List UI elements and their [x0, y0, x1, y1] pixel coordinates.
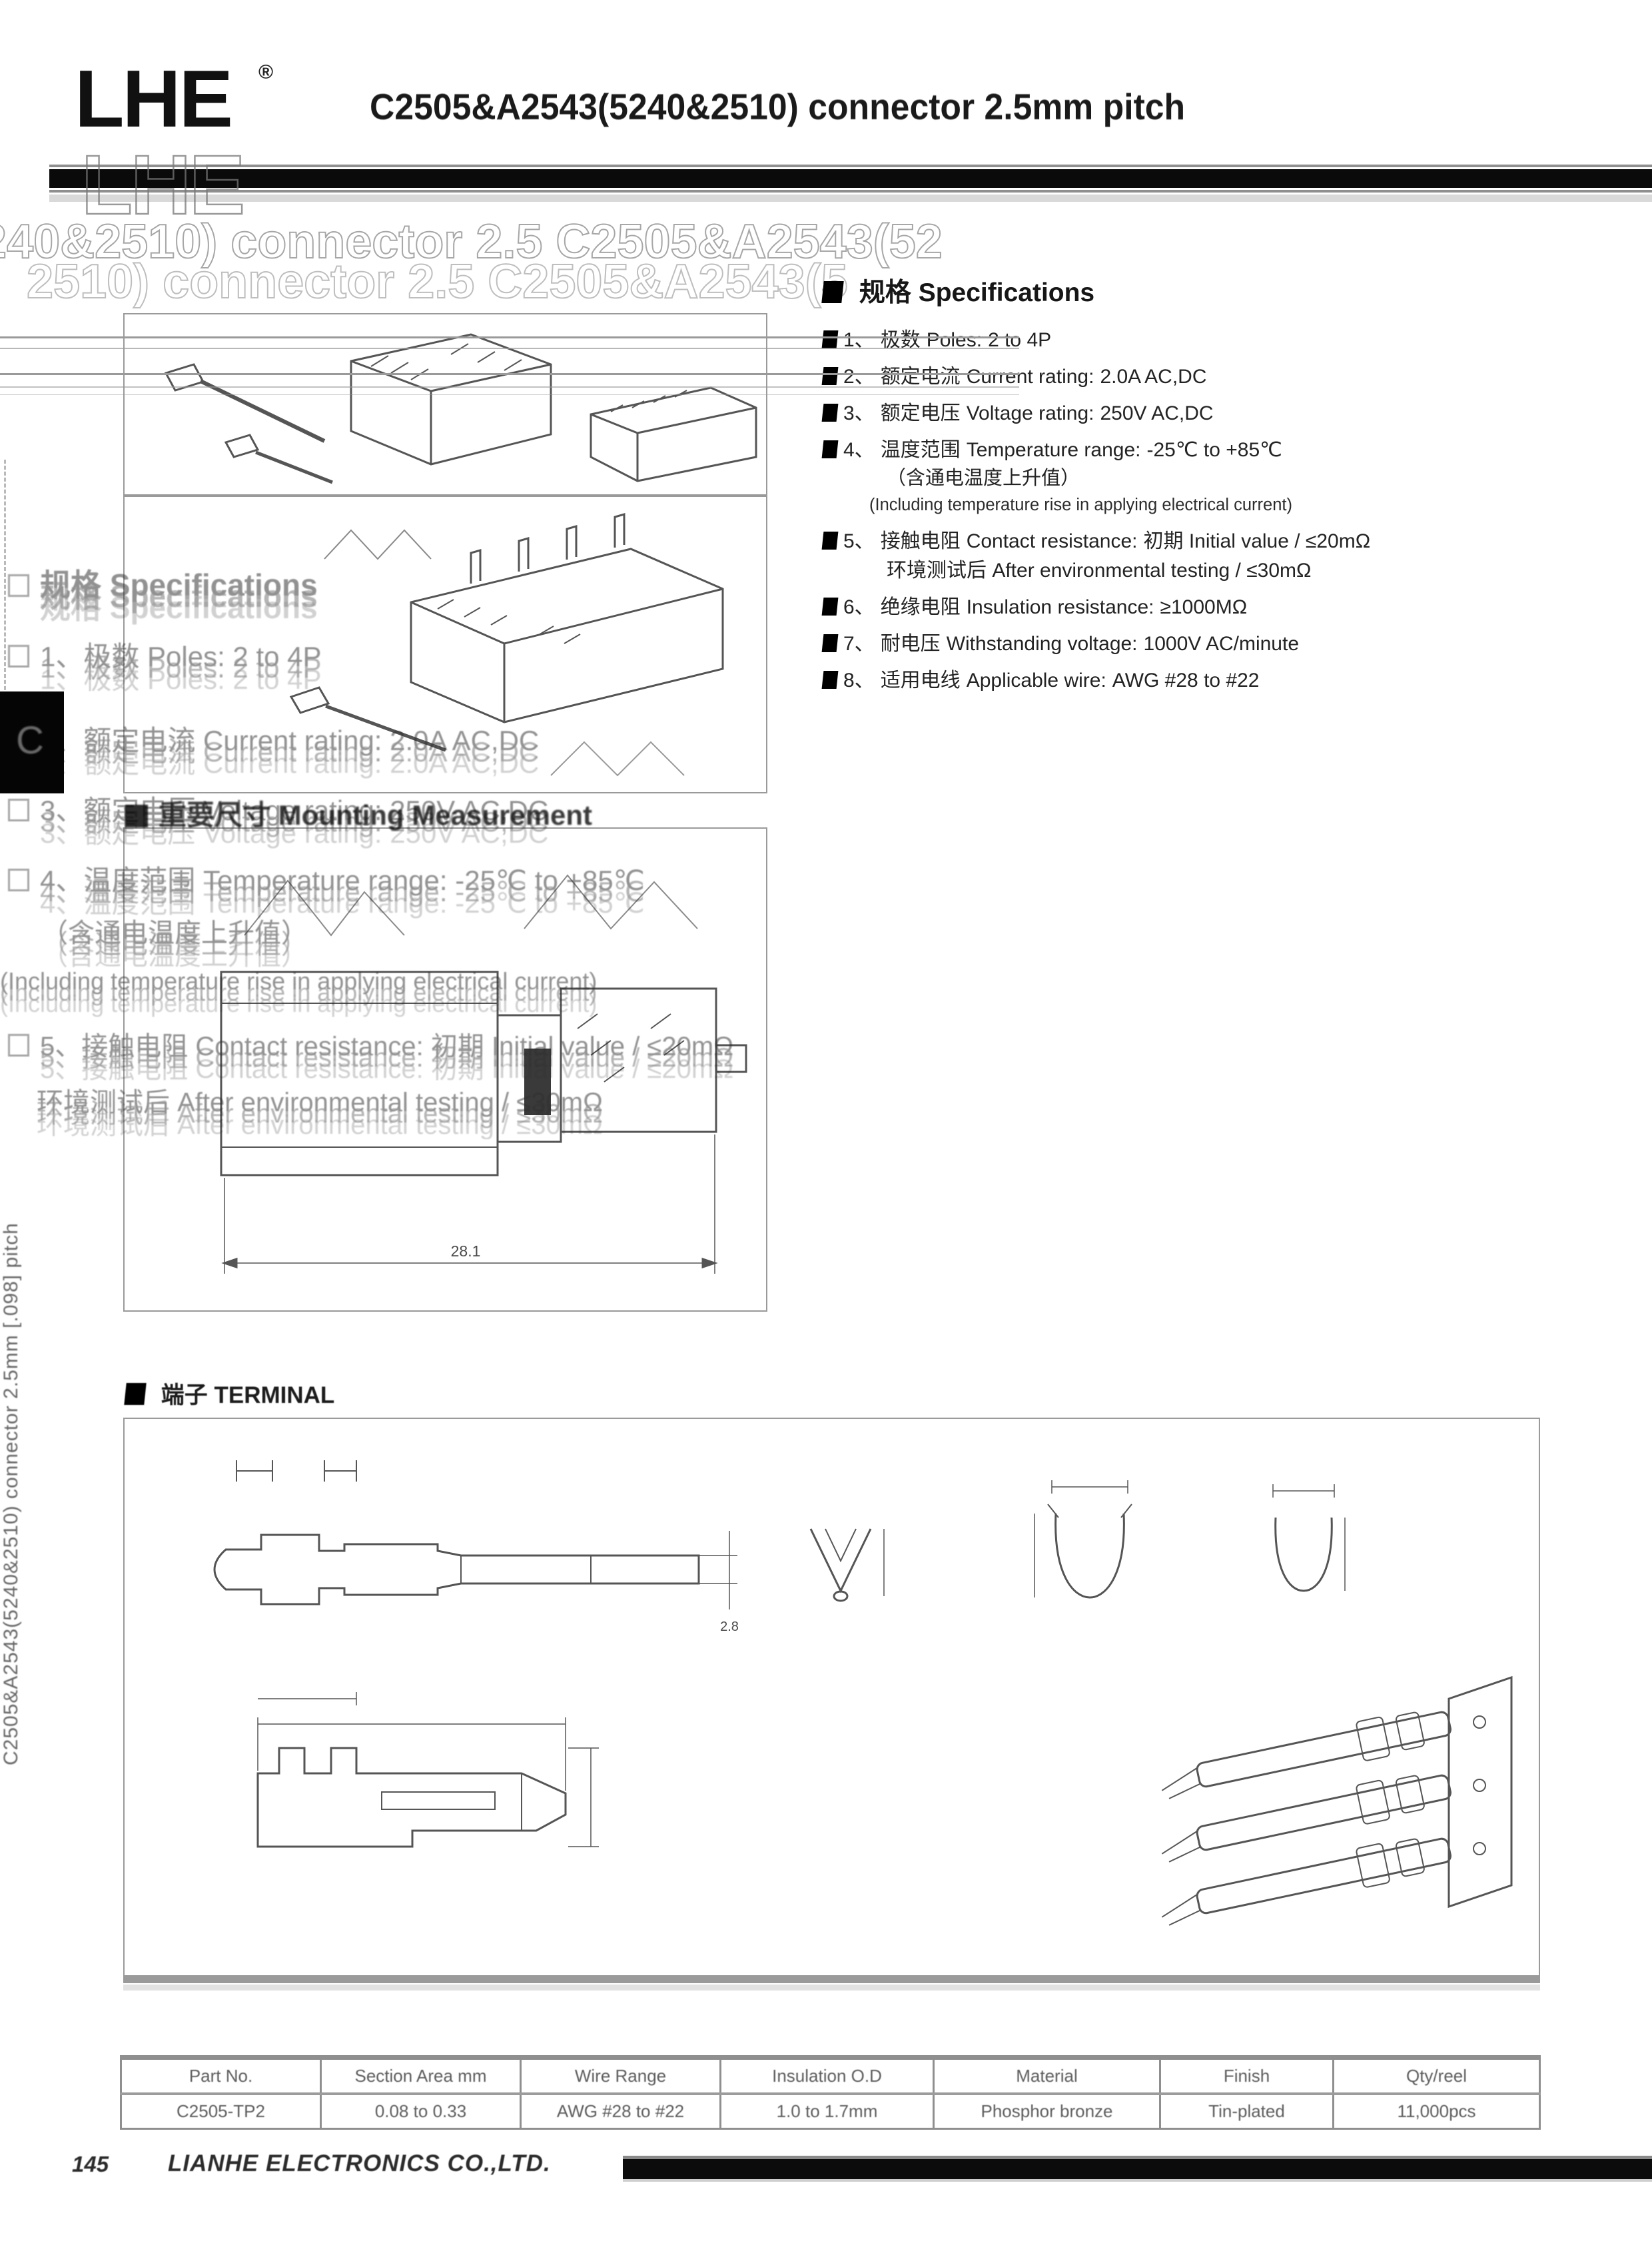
- u-barrel-drawing-2: [1273, 1484, 1345, 1591]
- table-header-cell: Part No.: [121, 2058, 321, 2094]
- ghost-spec-line: 规格 Specifications: [8, 561, 318, 605]
- spec-item-label-zh: 额定电压: [881, 402, 961, 424]
- scan-artifact-line: [0, 386, 1019, 388]
- scan-artifact-line: [0, 336, 1019, 338]
- specs-bullet-icon: [821, 281, 843, 303]
- table-header-row: Part No. Section Area mm Wire Range Insu…: [121, 2058, 1540, 2094]
- spec-item-label-en: Insulation resistance:: [967, 596, 1154, 618]
- table-header-cell: Wire Range: [521, 2058, 721, 2094]
- spec-item: 5、接触电阻Contact resistance:初期 Initial valu…: [823, 530, 1629, 582]
- specs-heading-en: Specifications: [919, 278, 1094, 307]
- scan-artifact-line: [0, 394, 1019, 395]
- spec-item-number: 3、: [843, 402, 875, 424]
- terminal-heading-en: TERMINAL: [214, 1382, 334, 1408]
- spec-item-value: 初期 Initial value / ≤20mΩ: [1143, 530, 1370, 552]
- terminal-bullet-icon: [124, 1383, 146, 1405]
- series-tab: C: [0, 691, 64, 793]
- terminal-strip-3d-drawing: [1156, 1677, 1511, 1930]
- spec-item-label-zh: 温度范围: [881, 439, 961, 461]
- drawing-box-overview: [123, 313, 767, 497]
- table-header-cell: Insulation O.D: [721, 2058, 934, 2094]
- spec-item-value: ≥1000MΩ: [1160, 596, 1248, 618]
- spec-bullet-icon: [822, 330, 839, 348]
- spec-item-label-zh: 额定电流: [881, 366, 961, 388]
- spec-item-number: 7、: [843, 633, 875, 655]
- scan-artifact-line: [49, 165, 1652, 167]
- u-barrel-drawing-1: [1034, 1480, 1132, 1597]
- ghost-title-line-2: 2510) connector 2.5 C2505&A2543(5: [27, 254, 848, 309]
- table-cell: C2505-TP2: [121, 2094, 321, 2129]
- terminal-heading-zh: 端子: [161, 1382, 208, 1408]
- spec-item-label-zh: 接触电阻: [881, 530, 961, 552]
- spec-item-number: 6、: [843, 596, 875, 618]
- spec-item: 8、适用电线Applicable wire:AWG #28 to #22: [823, 670, 1629, 692]
- specs-heading: 规格 Specifications: [823, 272, 1629, 309]
- spec-item-label-zh: 适用电线: [881, 670, 961, 691]
- spec-item: 6、绝缘电阻Insulation resistance:≥1000MΩ: [823, 596, 1629, 619]
- pin-dim-label: 2.8: [720, 1619, 739, 1634]
- ghost-spec-line: （含通电温度上升值）: [41, 911, 308, 950]
- spec-bullet-icon: [822, 598, 839, 616]
- spec-item-number: 4、: [843, 439, 875, 461]
- ghost-bullet-icon: [8, 799, 29, 821]
- ghost-spec-line: 5、接触电阻 Contact resistance: 初期 Initial va…: [8, 1025, 733, 1063]
- spec-item-label-en: Temperature range:: [967, 439, 1141, 461]
- registered-mark-icon: ®: [258, 61, 273, 84]
- ghost-spec-line: 1、极数 Poles: 2 to 4P: [8, 634, 322, 675]
- spec-bullet-icon: [822, 532, 839, 550]
- spec-bullet-icon: [822, 367, 839, 385]
- connector-iso-drawing: [125, 314, 766, 496]
- table-header-cell: Finish: [1160, 2058, 1334, 2094]
- datasheet-page: LHE ® C2505&A2543(5240&2510) connector 2…: [0, 0, 1652, 2243]
- spec-bullet-icon: [822, 634, 839, 652]
- spec-item-value: 1000V AC/minute: [1144, 633, 1299, 655]
- company-name: LIANHE ELECTRONICS CO.,LTD.: [168, 2150, 551, 2177]
- section-bullet-icon: [125, 805, 148, 827]
- ghost-bullet-icon: [8, 574, 29, 597]
- parts-table: Part No. Section Area mm Wire Range Insu…: [120, 2055, 1541, 2130]
- scan-artifact-band: [49, 195, 1652, 202]
- table-cell: 1.0 to 1.7mm: [721, 2094, 934, 2129]
- ghost-spec-line: 2、额定电流 Current rating: 2.0A AC,DC: [8, 718, 539, 759]
- table-header-cell: Qty/reel: [1334, 2058, 1540, 2094]
- spec-item: 4、温度范围Temperature range:-25℃ to +85℃ （含通…: [823, 439, 1629, 516]
- terminal-drawings: 2.8: [125, 1419, 1539, 1977]
- ghost-spec-line: 4、温度范围 Temperature range: -25℃ to +85℃: [8, 858, 645, 899]
- spec-item-label-en: Current rating:: [967, 366, 1094, 388]
- ghost-spec-line: (Including temperature rise in applying …: [0, 967, 597, 995]
- spec-item-label-zh: 耐电压: [881, 633, 941, 655]
- table-cell: 0.08 to 0.33: [321, 2094, 521, 2129]
- ghost-bullet-icon: [8, 869, 29, 891]
- ghost-spec-line: 环境测试后 After environmental testing / ≤30m…: [37, 1081, 603, 1119]
- spec-item-number: 5、: [843, 530, 875, 552]
- header-black-bar: [49, 169, 1652, 188]
- terminal-heading: 端子 TERMINAL: [125, 1376, 334, 1410]
- spec-item-number: 2、: [843, 366, 875, 388]
- spec-item-value-2: 环境测试后 After environmental testing / ≤30m…: [887, 560, 1629, 582]
- spec-item-value: 250V AC,DC: [1100, 402, 1214, 424]
- ghost-mould-heading: 重要尺寸 Mounting Measurement: [125, 793, 592, 833]
- table-header-cell: Material: [934, 2058, 1160, 2094]
- spec-bullet-icon: [822, 404, 839, 422]
- drawing-box-mounting: 28.1: [123, 827, 767, 1312]
- scan-artifact-line: [0, 348, 1019, 349]
- spec-item-value: 2.0A AC,DC: [1100, 366, 1206, 388]
- footer-bar: [623, 2156, 1652, 2182]
- spec-note-zh: （含通电温度上升值）: [887, 467, 1629, 490]
- male-pin-drawing: [214, 1531, 737, 1609]
- table-cell: 11,000pcs: [1334, 2094, 1540, 2129]
- table-header-cell: Section Area mm: [321, 2058, 521, 2094]
- ghost-bullet-icon: [8, 1034, 29, 1057]
- brand-logo: LHE: [75, 52, 231, 145]
- spec-item-value: -25℃ to +85℃: [1147, 439, 1282, 461]
- page-number: 145: [72, 2152, 109, 2177]
- spec-item-label-en: Contact resistance:: [967, 530, 1138, 552]
- table-cell: Tin-plated: [1160, 2094, 1334, 2129]
- spec-item-label-en: Voltage rating:: [967, 402, 1094, 424]
- table-row: C2505-TP2 0.08 to 0.33 AWG #28 to #22 1.…: [121, 2094, 1540, 2129]
- spec-bullet-icon: [822, 440, 839, 458]
- specs-heading-zh: 规格: [859, 278, 911, 307]
- spec-bullet-icon: [822, 671, 839, 689]
- series-tab-glyph: C: [16, 718, 44, 763]
- sidebar-vertical-text: C2505&A2543(5240&2510) connector 2.5mm […: [0, 1222, 23, 1765]
- female-terminal-drawing: [258, 1692, 599, 1847]
- spec-item-label-en: Applicable wire:: [967, 670, 1106, 691]
- spec-item: 2、额定电流Current rating:2.0A AC,DC: [823, 366, 1629, 388]
- spec-note-en: (Including temperature rise in applying …: [869, 494, 1629, 516]
- spec-item-label-zh: 绝缘电阻: [881, 596, 961, 618]
- spec-item-value: AWG #28 to #22: [1112, 670, 1260, 691]
- terminal-box-bottom-band: [123, 1985, 1540, 1991]
- ghost-bullet-icon: [8, 645, 29, 668]
- terminal-box: 2.8: [123, 1418, 1540, 1979]
- page-title: C2505&A2543(5240&2510) connector 2.5mm p…: [370, 85, 1185, 128]
- spec-item-label-en: Withstanding voltage:: [947, 633, 1138, 655]
- assembly-drawing: 28.1: [125, 829, 766, 1310]
- assembly-dim-label: 28.1: [451, 1242, 481, 1260]
- scan-artifact-line: [0, 373, 1019, 375]
- spec-item-number: 8、: [843, 670, 875, 691]
- scan-artifact-line: [49, 190, 1652, 193]
- spec-item: 3、额定电压Voltage rating:250V AC,DC: [823, 402, 1629, 425]
- table-cell: AWG #28 to #22: [521, 2094, 721, 2129]
- end-view-arrow-drawing: [811, 1529, 884, 1601]
- spec-item: 7、耐电压Withstanding voltage:1000V AC/minut…: [823, 633, 1629, 656]
- table-cell: Phosphor bronze: [934, 2094, 1160, 2129]
